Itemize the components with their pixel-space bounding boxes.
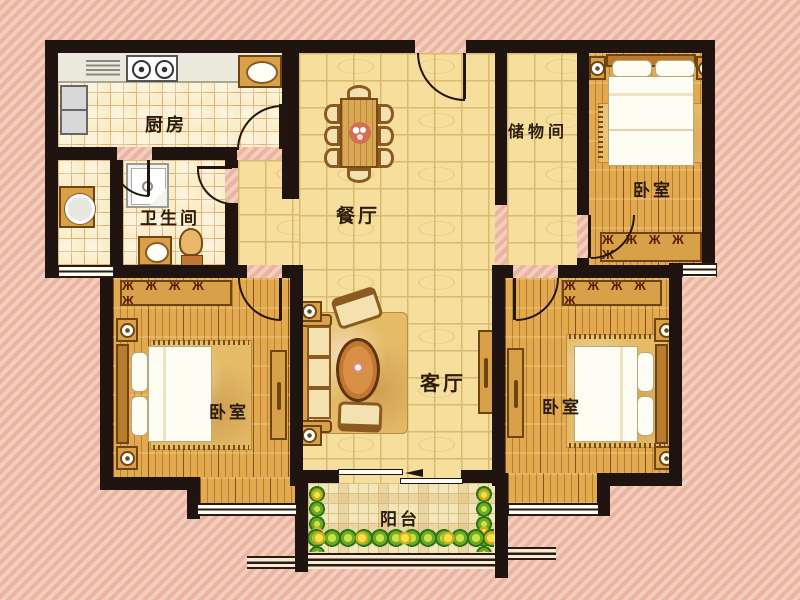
wall	[466, 40, 715, 53]
wall	[45, 40, 58, 278]
drainboard-grill-icon	[86, 60, 120, 77]
wall	[558, 265, 669, 278]
rug-fringe	[153, 340, 249, 345]
room-label-bathroom: 卫生间	[140, 204, 200, 229]
centerpiece-dot	[360, 127, 366, 133]
bed-headboard	[655, 344, 668, 444]
sliding-door-panel	[400, 478, 463, 484]
wall	[58, 147, 117, 160]
dining-chair-icon	[324, 148, 340, 168]
rug-fringe	[569, 334, 665, 339]
room-bedroom-sw-bay-floor	[200, 477, 295, 504]
lamp-icon	[120, 323, 135, 338]
cabinet-handle	[484, 358, 488, 388]
window	[58, 265, 114, 278]
fridge-divider	[62, 109, 86, 111]
wall	[45, 40, 415, 53]
sofa-cushion	[307, 388, 331, 419]
lamp-icon	[302, 428, 317, 443]
slide-direction-arrow-icon	[405, 469, 423, 477]
toilet-bowl	[179, 228, 203, 256]
wardrobe-bedroom-sw	[120, 280, 232, 306]
wall	[282, 40, 299, 199]
fridge-icon	[60, 85, 88, 135]
dining-chair-icon	[324, 126, 340, 146]
wall	[495, 53, 507, 205]
lamp-icon	[302, 304, 317, 319]
wall	[225, 203, 238, 265]
armchair-icon	[337, 401, 382, 433]
pillow-icon	[612, 60, 652, 77]
dining-chair-icon	[378, 126, 394, 146]
bay-window	[197, 503, 297, 516]
centerpiece-icon	[349, 122, 371, 144]
desk-icon	[507, 348, 524, 438]
wall	[577, 258, 589, 278]
stove-icon	[126, 55, 178, 82]
wall	[495, 473, 508, 578]
dining-chair-icon	[347, 168, 371, 183]
wall	[152, 147, 237, 160]
sofa-cushion	[307, 357, 331, 388]
room-label-balcony: 阳台	[380, 505, 420, 530]
bed-headboard	[116, 344, 129, 444]
washer-drum	[65, 194, 95, 224]
room-label-living: 客厅	[420, 367, 466, 396]
wall	[303, 470, 339, 483]
room-label-bedroom-ne: 卧室	[633, 176, 673, 201]
coffee-table-top	[343, 346, 373, 394]
stove-burner-icon	[132, 60, 151, 79]
room-label-dining: 餐厅	[336, 201, 380, 228]
wall	[100, 477, 200, 490]
wall	[669, 263, 682, 486]
lamp-icon	[120, 451, 135, 466]
balcony-railing	[247, 556, 295, 569]
pillow-icon	[637, 396, 654, 436]
centerpiece-dot	[357, 134, 363, 140]
bathroom-sink-icon	[138, 236, 172, 266]
stove-burner-icon	[155, 60, 174, 79]
wall	[492, 265, 505, 486]
duvet-fold	[609, 129, 693, 131]
sink-basin	[246, 61, 278, 84]
dresser-handle	[277, 382, 281, 410]
wall	[100, 265, 113, 490]
wall	[577, 53, 589, 215]
toilet-icon	[178, 228, 205, 265]
washing-machine-icon	[59, 186, 95, 228]
dining-chair-icon	[378, 148, 394, 168]
window	[682, 263, 717, 277]
room-label-bedroom-sw: 卧室	[209, 398, 249, 423]
bay-window	[508, 503, 599, 516]
wall	[295, 473, 308, 572]
room-label-bedroom-se: 卧室	[542, 393, 582, 418]
basin	[145, 242, 169, 263]
wall	[45, 265, 58, 278]
wall	[290, 265, 303, 486]
desk-handle	[514, 380, 518, 408]
rug-fringe	[569, 443, 665, 448]
pillow-icon	[131, 396, 148, 436]
balcony-railing	[295, 553, 508, 569]
wall	[497, 265, 513, 278]
wall	[112, 265, 247, 278]
pillow-icon	[655, 60, 695, 77]
sliding-door-panel	[338, 469, 403, 475]
rug-fringe	[153, 445, 249, 450]
room-label-storage: 储物间	[508, 118, 568, 142]
pillow-icon	[637, 352, 654, 392]
dining-chair-icon	[324, 104, 340, 124]
rug-fringe	[598, 106, 603, 160]
pillow-icon	[131, 352, 148, 392]
bed-duvet	[148, 346, 212, 442]
lamp-icon	[590, 61, 605, 76]
room-label-kitchen: 厨房	[145, 111, 187, 137]
coffee-table-icon	[336, 338, 380, 402]
bed-duvet	[608, 76, 694, 166]
wall	[702, 40, 715, 263]
room-bedroom-se-bay-floor	[508, 473, 597, 504]
dresser-icon	[270, 350, 287, 440]
balcony-railing	[508, 547, 556, 560]
room-storage-floor	[507, 53, 577, 265]
kitchen-sink-icon	[238, 55, 282, 88]
dining-table-icon	[340, 98, 378, 168]
bed-duvet	[574, 346, 638, 442]
floor-plan-canvas: 厨房 卫生间 餐厅 储物间 卧室 卧室 客厅 卧室 阳台	[0, 0, 800, 600]
dining-chair-icon	[378, 104, 394, 124]
wardrobe-bedroom-se	[562, 280, 662, 306]
sofa-cushion	[307, 326, 331, 357]
